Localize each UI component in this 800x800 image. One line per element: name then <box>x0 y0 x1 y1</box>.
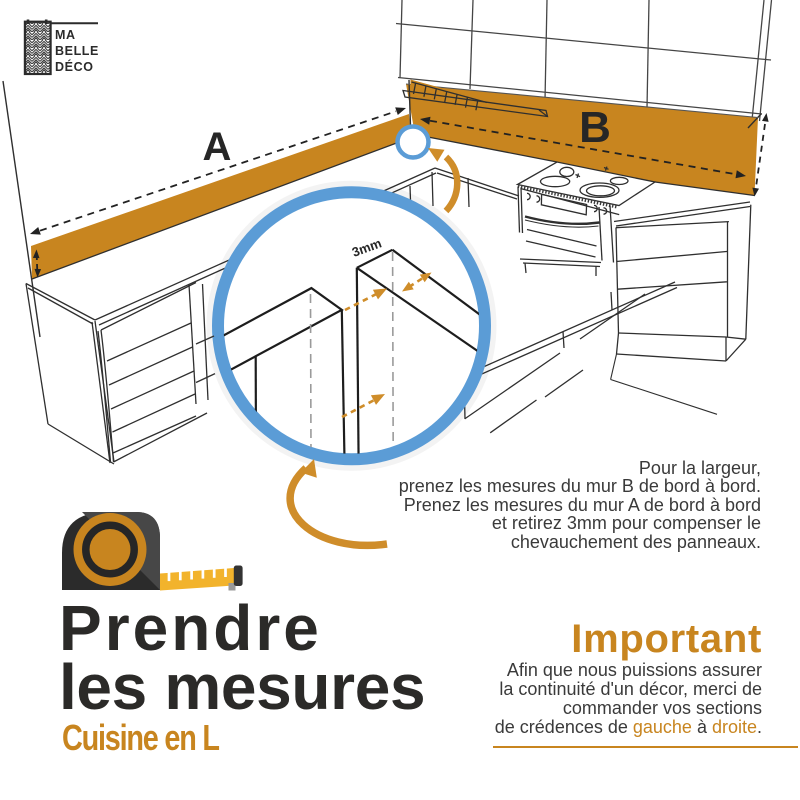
svg-text:B: B <box>579 103 611 152</box>
svg-text:A: A <box>203 125 232 169</box>
